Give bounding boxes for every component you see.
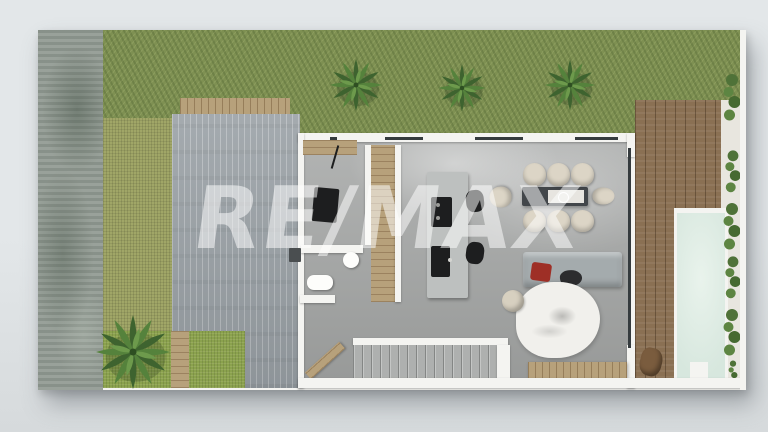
floor-plan-render: RE/MAX <box>38 30 746 390</box>
dining-chair <box>593 188 615 205</box>
palm-tree <box>540 55 600 115</box>
sideboard <box>303 140 357 155</box>
remax-watermark: RE/MAX <box>188 176 587 262</box>
window <box>575 137 618 140</box>
stair-newel <box>497 345 510 379</box>
wall-bottom <box>298 378 742 388</box>
border-plant <box>722 72 742 124</box>
staircase <box>353 345 497 379</box>
palm-tree-large <box>89 308 177 396</box>
pool-step <box>690 362 708 378</box>
entry-gate-planks <box>180 98 290 114</box>
window <box>475 137 523 140</box>
swimming-pool <box>677 213 725 378</box>
glass-sliding-door <box>628 148 631 348</box>
plan-right-border <box>740 30 746 390</box>
border-plant <box>722 308 742 358</box>
tv-console <box>528 362 627 378</box>
toilet <box>307 275 333 290</box>
window <box>385 137 423 140</box>
hedge-strip <box>103 118 172 331</box>
palm-tree <box>434 60 490 116</box>
stair-stringer-wall <box>353 338 508 345</box>
border-plant <box>722 202 742 252</box>
bathroom-wall-bottom <box>300 295 335 303</box>
palm-tree <box>325 54 387 116</box>
pouf <box>502 290 524 312</box>
render-viewport: RE/MAX <box>0 0 768 432</box>
